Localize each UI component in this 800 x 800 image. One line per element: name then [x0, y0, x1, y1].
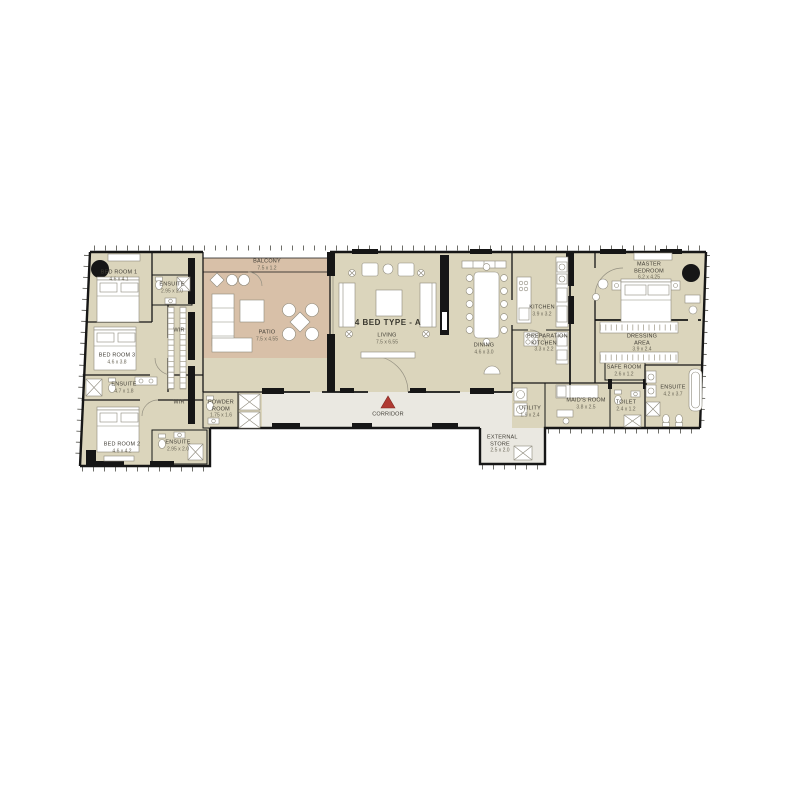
patio-chair: [283, 304, 296, 317]
balcony-area: [203, 258, 330, 272]
dining-chair: [466, 301, 473, 308]
column-circle-bedroom1: [91, 260, 109, 278]
tv-console: [361, 352, 415, 358]
floorplan-canvas: BED ROOM 1 4.6 x 4.1 ENSUITE 2.95 x 2.0 …: [0, 0, 800, 800]
wardrobe-master: [634, 253, 672, 260]
planter: [239, 275, 250, 286]
patio-chair: [283, 328, 296, 341]
toilet-ensuite3: [109, 384, 116, 393]
armchair-master: [598, 279, 608, 289]
bathtub: [689, 369, 702, 411]
dining-chair: [466, 288, 473, 295]
sofa: [420, 283, 436, 327]
dressing-wardrobe: [600, 322, 678, 333]
toilet-ensuite1: [156, 281, 163, 290]
side-table-master: [593, 294, 600, 301]
patio-chair: [306, 328, 319, 341]
coffee-table: [376, 290, 402, 316]
nightstand: [671, 281, 680, 290]
patio-coffee-table: [240, 300, 264, 322]
washer: [514, 388, 527, 401]
patio-chair: [306, 304, 319, 317]
bidet-master: [676, 415, 683, 424]
floor-plan-drawing: [0, 0, 800, 800]
dining-chair: [501, 327, 508, 334]
wardrobe-bedroom1: [108, 254, 140, 261]
armchair: [398, 263, 414, 276]
toilet-master: [663, 415, 670, 424]
sink-ensuite2: [174, 432, 185, 438]
sink-wc: [631, 391, 640, 397]
armchair: [362, 263, 378, 276]
toilet-ensuite2: [159, 440, 166, 449]
sink-master: [646, 385, 656, 397]
plant: [383, 264, 393, 274]
dining-chair: [466, 327, 473, 334]
dining-chair: [466, 275, 473, 282]
desk-maids: [557, 410, 573, 417]
stove: [524, 332, 538, 346]
toilet-powder: [207, 402, 214, 411]
dining-chair: [501, 275, 508, 282]
column-circle-master: [682, 264, 700, 282]
dining-chair: [501, 288, 508, 295]
fridge: [557, 306, 567, 322]
planter: [227, 275, 238, 286]
sink-powder: [208, 418, 219, 424]
sofa: [339, 283, 355, 327]
dining-chair: [501, 301, 508, 308]
sink-ensuite1: [165, 298, 176, 304]
console-bedroom2: [104, 456, 134, 461]
dryer: [514, 403, 527, 416]
sink-ensuite3: [135, 377, 157, 385]
chaise-master: [685, 295, 700, 303]
dining-chair: [466, 314, 473, 321]
hall-strip-area: [203, 358, 330, 392]
dining-table: [474, 272, 499, 338]
dressing-wardrobe: [600, 352, 678, 363]
toilet-wc: [615, 396, 622, 405]
dining-chair: [483, 339, 490, 346]
wir-closet: [168, 307, 174, 389]
dining-chair: [501, 314, 508, 321]
nightstand: [612, 281, 621, 290]
sink-master: [646, 371, 656, 383]
dining-chair: [483, 264, 490, 271]
